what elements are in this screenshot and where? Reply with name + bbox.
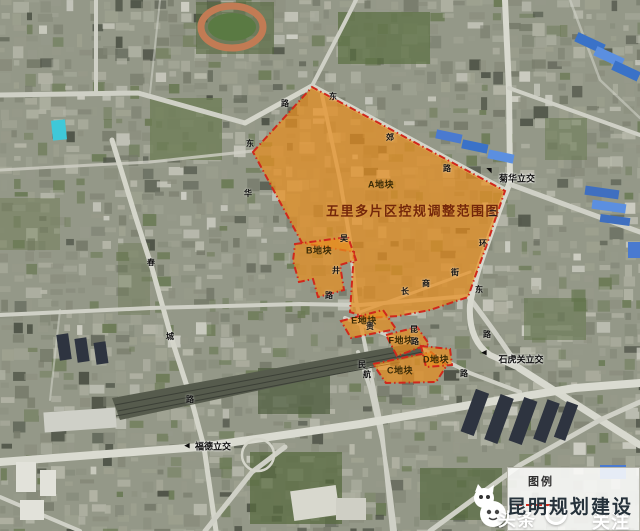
stadium-field [208, 13, 256, 41]
swimming-pool [51, 119, 67, 140]
legend-boundary-line-sample [516, 504, 552, 506]
parcel-D-boundary [421, 346, 452, 367]
planning-map-image: 五里多片区控规调整范围图A地块B地块E地块F地块C地块D地块菊华立交石虎关立交福… [0, 0, 640, 531]
satellite-basemap [0, 0, 640, 531]
legend-box: 图例 [507, 467, 640, 531]
legend-title: 图例 [528, 473, 639, 489]
